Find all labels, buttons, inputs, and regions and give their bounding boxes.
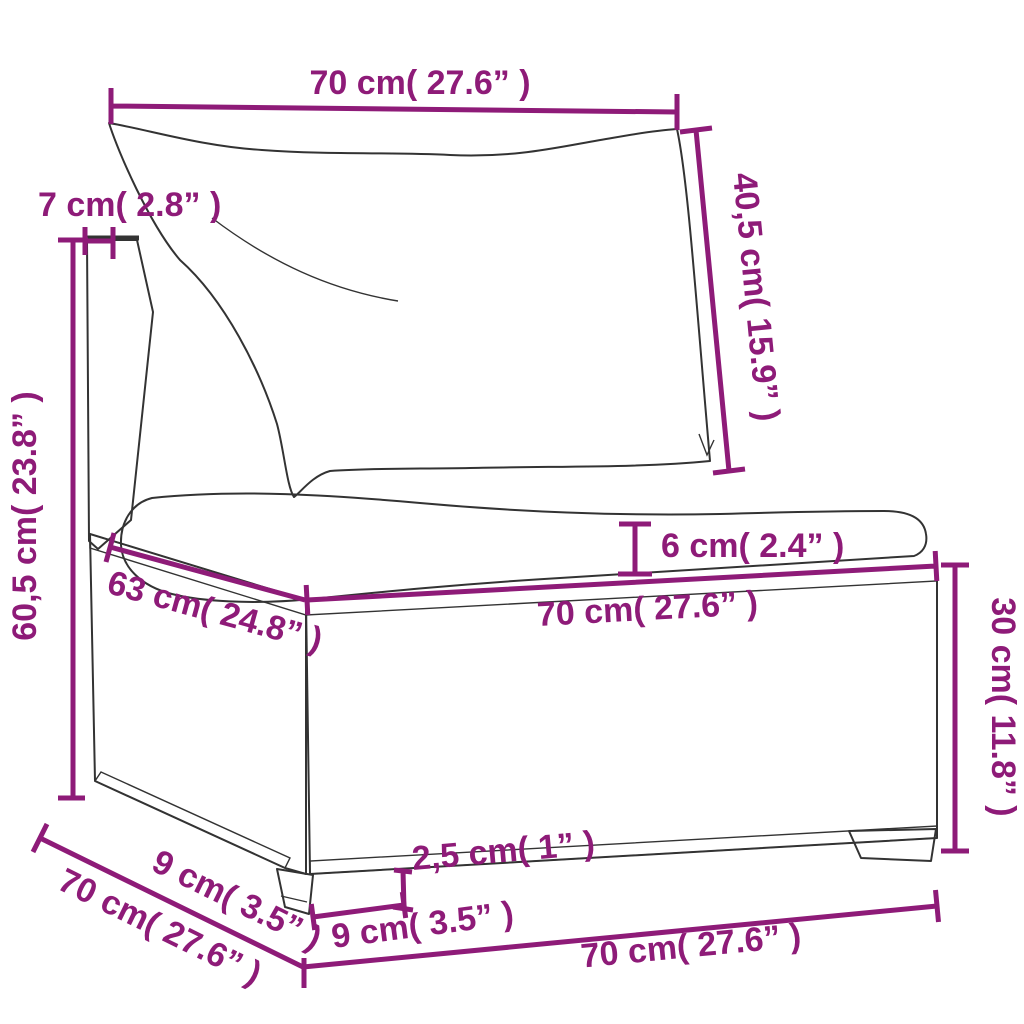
dim-foot-width: 9 cm( 3.5” )	[311, 892, 516, 956]
dim-back-thickness-label: 7 cm( 2.8” )	[38, 186, 221, 224]
dim-back-cushion-height-label: 40,5 cm( 15.9” )	[725, 171, 787, 423]
dim-back-width-label: 70 cm( 27.6” )	[309, 64, 530, 102]
base-box	[90, 534, 937, 874]
dim-total-height: 60,5 cm( 23.8” )	[6, 240, 88, 798]
dim-base-height-label: 30 cm( 11.8” )	[984, 597, 1022, 816]
dim-base-height: 30 cm( 11.8” )	[941, 565, 1022, 851]
cushion-corner-pinch	[699, 434, 714, 455]
dim-total-height-label: 60,5 cm( 23.8” )	[6, 391, 44, 640]
dim-seat-cushion-thickness-label: 6 cm( 2.4” )	[661, 527, 844, 565]
base-rail-bottom-front	[310, 826, 937, 874]
base-rail-bottom-left	[95, 772, 290, 868]
dim-foot-height-label: 2,5 cm( 1” )	[410, 824, 596, 878]
back-cushion	[109, 123, 714, 497]
dim-depth-diagonal: 9 cm( 3.5” ) 70 cm( 27.6” )	[33, 824, 327, 993]
dim-back-width: 70 cm( 27.6” )	[111, 64, 677, 130]
foot-right	[849, 829, 936, 861]
dim-base-width-label: 70 cm( 27.6” )	[579, 917, 803, 976]
furniture-dimension-diagram: 70 cm( 27.6” ) 7 cm( 2.8” ) 60,5 cm( 23.…	[0, 0, 1024, 1024]
cushion-crease	[212, 218, 398, 301]
dim-foot-width-label: 9 cm( 3.5” )	[329, 894, 516, 956]
dim-seat-depth: 63 cm( 24.8” )	[103, 533, 326, 659]
dim-seat-width-label: 70 cm( 27.6” )	[536, 584, 759, 634]
dim-back-thickness: 7 cm( 2.8” )	[38, 186, 221, 259]
feet	[277, 829, 936, 914]
